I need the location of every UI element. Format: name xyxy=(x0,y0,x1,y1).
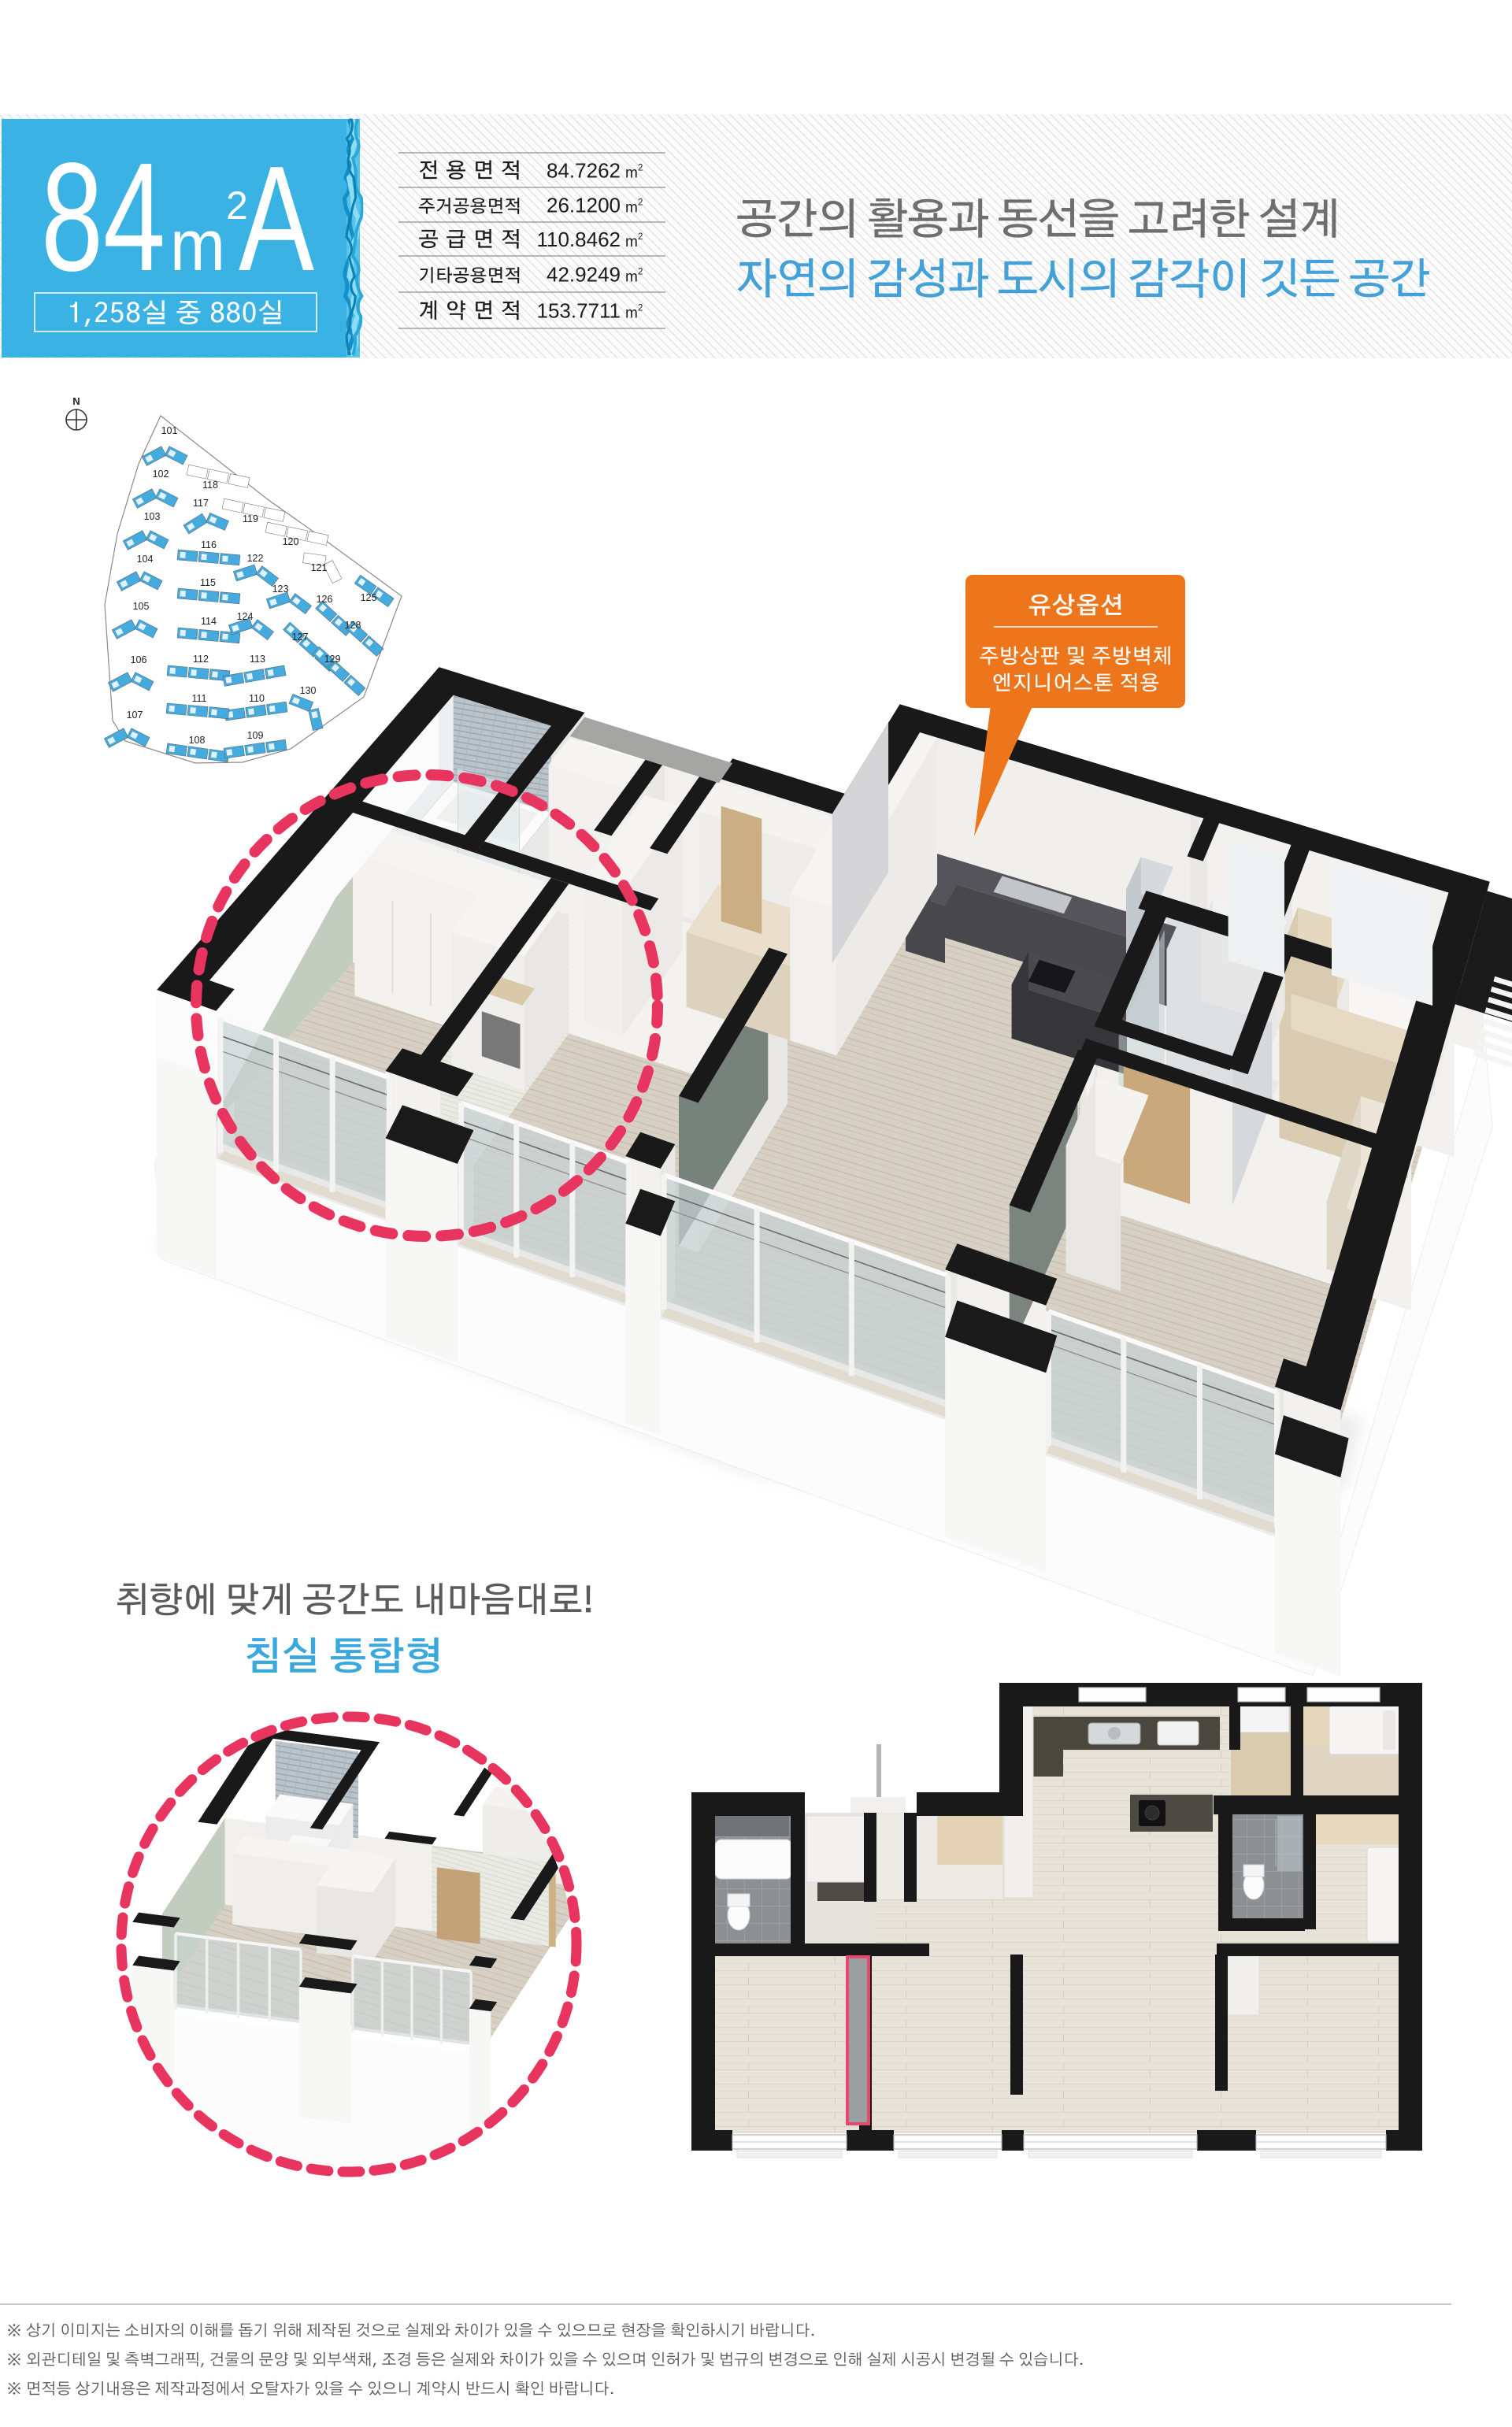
svg-text:101: 101 xyxy=(161,425,178,436)
svg-text:113: 113 xyxy=(250,654,265,665)
svg-text:m: m xyxy=(170,206,225,286)
svg-text:119: 119 xyxy=(243,513,258,524)
svg-text:A: A xyxy=(239,135,314,302)
svg-text:m: m xyxy=(625,165,638,182)
svg-text:104: 104 xyxy=(137,554,154,565)
svg-text:117: 117 xyxy=(193,498,209,509)
svg-text:123: 123 xyxy=(272,584,289,595)
svg-text:2: 2 xyxy=(638,232,643,242)
svg-text:26.1200: 26.1200 xyxy=(547,194,621,217)
svg-text:m: m xyxy=(625,200,638,217)
svg-text:110: 110 xyxy=(249,693,265,704)
svg-text:110.8462: 110.8462 xyxy=(536,228,621,251)
svg-text:84: 84 xyxy=(41,131,165,303)
svg-text:121: 121 xyxy=(311,562,328,573)
svg-text:122: 122 xyxy=(247,553,264,564)
svg-text:120: 120 xyxy=(283,536,299,547)
svg-text:112: 112 xyxy=(193,654,209,665)
svg-text:114: 114 xyxy=(201,616,217,627)
svg-text:2: 2 xyxy=(638,198,643,208)
svg-text:102: 102 xyxy=(153,469,169,480)
svg-text:m: m xyxy=(625,269,638,286)
svg-text:106: 106 xyxy=(131,654,147,665)
svg-text:m: m xyxy=(625,306,638,322)
svg-text:127: 127 xyxy=(292,632,309,643)
svg-text:130: 130 xyxy=(300,685,317,696)
svg-text:103: 103 xyxy=(144,511,161,522)
svg-text:125: 125 xyxy=(361,592,377,603)
svg-text:108: 108 xyxy=(189,735,206,746)
svg-text:N: N xyxy=(72,395,80,407)
svg-text:m: m xyxy=(625,234,638,250)
svg-text:105: 105 xyxy=(133,601,150,612)
svg-text:128: 128 xyxy=(345,620,361,631)
svg-text:116: 116 xyxy=(201,539,217,550)
svg-text:107: 107 xyxy=(127,710,143,721)
svg-text:126: 126 xyxy=(317,594,333,605)
svg-text:153.7711: 153.7711 xyxy=(536,299,621,323)
svg-text:2: 2 xyxy=(638,268,643,277)
svg-text:2: 2 xyxy=(638,164,643,173)
svg-text:111: 111 xyxy=(191,693,206,704)
svg-text:115: 115 xyxy=(200,577,216,588)
svg-text:109: 109 xyxy=(247,730,264,741)
svg-text:84.7262: 84.7262 xyxy=(547,159,621,183)
svg-text:118: 118 xyxy=(202,480,218,491)
svg-text:124: 124 xyxy=(237,611,254,622)
svg-text:42.9249: 42.9249 xyxy=(547,263,621,287)
svg-text:2: 2 xyxy=(638,304,643,313)
svg-text:129: 129 xyxy=(324,654,341,665)
